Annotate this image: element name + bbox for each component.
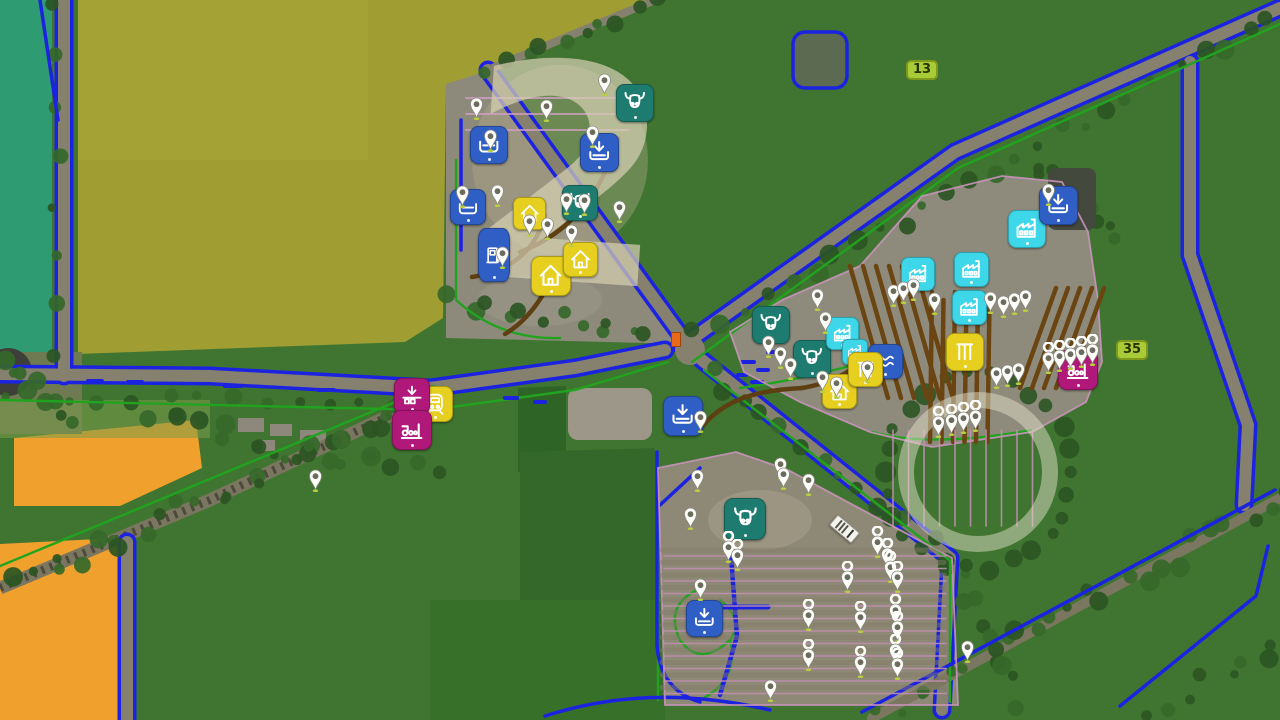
map-pin[interactable]	[926, 290, 943, 315]
map-pin[interactable]	[596, 71, 613, 96]
map-pin[interactable]	[692, 576, 709, 601]
download-icon	[690, 604, 719, 633]
map-pin[interactable]	[576, 191, 593, 216]
marker-anchor-dot	[493, 276, 496, 279]
bars-icon	[950, 337, 980, 367]
map-pin[interactable]	[817, 309, 834, 334]
implement-vehicle-marker[interactable]	[671, 332, 681, 347]
marker-anchor-dot	[964, 365, 967, 368]
map-pin[interactable]	[800, 471, 817, 496]
pin-icon	[576, 191, 593, 216]
pin-icon	[859, 358, 876, 383]
pin-icon	[839, 561, 856, 593]
marker-layer: 1335	[0, 0, 1280, 720]
pin-icon	[889, 648, 906, 680]
factory-icon	[1012, 214, 1042, 244]
house-icon	[535, 260, 566, 291]
map-pin[interactable]	[539, 215, 556, 240]
pin-icon	[494, 244, 511, 269]
unload-point-marker[interactable]	[686, 600, 723, 637]
pin-icon	[468, 95, 485, 120]
marker-anchor-dot	[970, 281, 973, 284]
map-pin-ringed[interactable]	[839, 561, 856, 593]
implement-icon	[671, 332, 681, 347]
map-pin[interactable]	[1017, 287, 1034, 312]
map-pin[interactable]	[494, 244, 511, 269]
marker-anchor-dot	[703, 631, 706, 634]
platform-unload-icon	[398, 382, 426, 410]
silo-marker[interactable]	[946, 333, 984, 371]
map-pin-ringed[interactable]	[800, 639, 817, 671]
pin-icon	[905, 276, 922, 301]
map-pin[interactable]	[307, 467, 324, 492]
pin-icon	[852, 601, 869, 633]
pin-icon	[454, 183, 471, 208]
map-pin[interactable]	[1040, 181, 1057, 206]
pin-icon	[775, 465, 792, 490]
pin-icon	[692, 576, 709, 601]
field-number-badge: 35	[1116, 340, 1148, 360]
pin-icon	[1084, 334, 1101, 366]
map-pin[interactable]	[689, 467, 706, 492]
marker-anchor-dot	[1077, 384, 1080, 387]
map-pin[interactable]	[468, 95, 485, 120]
marker-anchor-dot	[411, 444, 414, 447]
pin-icon	[1010, 360, 1027, 385]
pin-icon	[809, 286, 826, 311]
marker-anchor-dot	[598, 166, 601, 169]
pin-icon	[596, 71, 613, 96]
marker-anchor-dot	[838, 403, 841, 406]
pin-icon	[307, 467, 324, 492]
pin-icon	[817, 309, 834, 334]
map-pin-ringed[interactable]	[967, 400, 984, 432]
marker-anchor-dot	[1057, 219, 1060, 222]
pin-icon	[521, 212, 538, 237]
map-pin[interactable]	[905, 276, 922, 301]
pin-icon	[926, 290, 943, 315]
cow-icon	[620, 88, 650, 118]
cow-pasture-marker[interactable]	[616, 84, 654, 122]
pin-icon	[692, 408, 709, 433]
pin-icon	[959, 638, 976, 663]
pin-icon	[482, 127, 499, 152]
pin-icon	[611, 198, 628, 223]
map-pin[interactable]	[489, 182, 506, 207]
map-pin[interactable]	[538, 97, 555, 122]
map-pin[interactable]	[762, 677, 779, 702]
pin-icon	[584, 123, 601, 148]
pin-icon	[539, 215, 556, 240]
pin-icon	[682, 505, 699, 530]
map-pin[interactable]	[809, 286, 826, 311]
pin-icon	[558, 190, 575, 215]
pin-icon	[729, 539, 746, 571]
house-icon	[567, 246, 594, 273]
map-pin-ringed[interactable]	[729, 539, 746, 571]
pin-icon	[889, 561, 906, 593]
map-pin-ringed[interactable]	[800, 599, 817, 631]
pin-icon	[967, 400, 984, 432]
pin-icon	[538, 97, 555, 122]
map-pin[interactable]	[521, 212, 538, 237]
map-pin[interactable]	[692, 408, 709, 433]
map-pin-ringed[interactable]	[852, 601, 869, 633]
pin-icon	[1040, 181, 1057, 206]
marker-anchor-dot	[488, 158, 491, 161]
map-pin[interactable]	[828, 374, 845, 399]
map-pin[interactable]	[1010, 360, 1027, 385]
factory-marker[interactable]	[954, 252, 989, 287]
pin-icon	[828, 374, 845, 399]
truck-icon	[829, 514, 860, 543]
map-pin[interactable]	[775, 465, 792, 490]
map-pin-ringed[interactable]	[889, 648, 906, 680]
truck-vehicle-marker[interactable]	[829, 514, 860, 543]
marker-anchor-dot	[744, 534, 747, 537]
pin-icon	[689, 467, 706, 492]
map-pin[interactable]	[558, 190, 575, 215]
pin-icon	[800, 639, 817, 671]
factory-icon	[956, 294, 983, 321]
pin-icon	[800, 599, 817, 631]
marker-anchor-dot	[434, 416, 437, 419]
production-icon	[396, 414, 427, 445]
pin-icon	[800, 471, 817, 496]
factory-icon	[958, 256, 985, 283]
map-pin[interactable]	[959, 638, 976, 663]
train-unload-marker[interactable]	[394, 378, 430, 414]
map-pin[interactable]	[611, 198, 628, 223]
marker-anchor-dot	[682, 430, 685, 433]
map-pin[interactable]	[859, 358, 876, 383]
marker-anchor-dot	[550, 290, 553, 293]
production-marker[interactable]	[392, 410, 432, 450]
pin-icon	[762, 677, 779, 702]
map-pin[interactable]	[782, 355, 799, 380]
pin-icon	[1017, 287, 1034, 312]
map-pin[interactable]	[482, 127, 499, 152]
marker-anchor-dot	[1026, 242, 1029, 245]
marker-anchor-dot	[579, 271, 582, 274]
map-pin[interactable]	[563, 222, 580, 247]
marker-anchor-dot	[634, 116, 637, 119]
pin-icon	[563, 222, 580, 247]
map-pin[interactable]	[682, 505, 699, 530]
marker-anchor-dot	[467, 219, 470, 222]
map-pin-ringed[interactable]	[889, 561, 906, 593]
game-map-overview: 2 1335	[0, 0, 1280, 720]
map-pin-ringed[interactable]	[1084, 334, 1101, 366]
pin-icon	[489, 182, 506, 207]
field-number-badge: 13	[906, 60, 938, 80]
pin-icon	[782, 355, 799, 380]
map-pin[interactable]	[584, 123, 601, 148]
pin-icon	[852, 646, 869, 678]
marker-anchor-dot	[968, 319, 971, 322]
map-pin[interactable]	[454, 183, 471, 208]
marker-anchor-dot	[884, 373, 887, 376]
farmhouse-marker[interactable]	[563, 242, 598, 277]
map-pin-ringed[interactable]	[852, 646, 869, 678]
